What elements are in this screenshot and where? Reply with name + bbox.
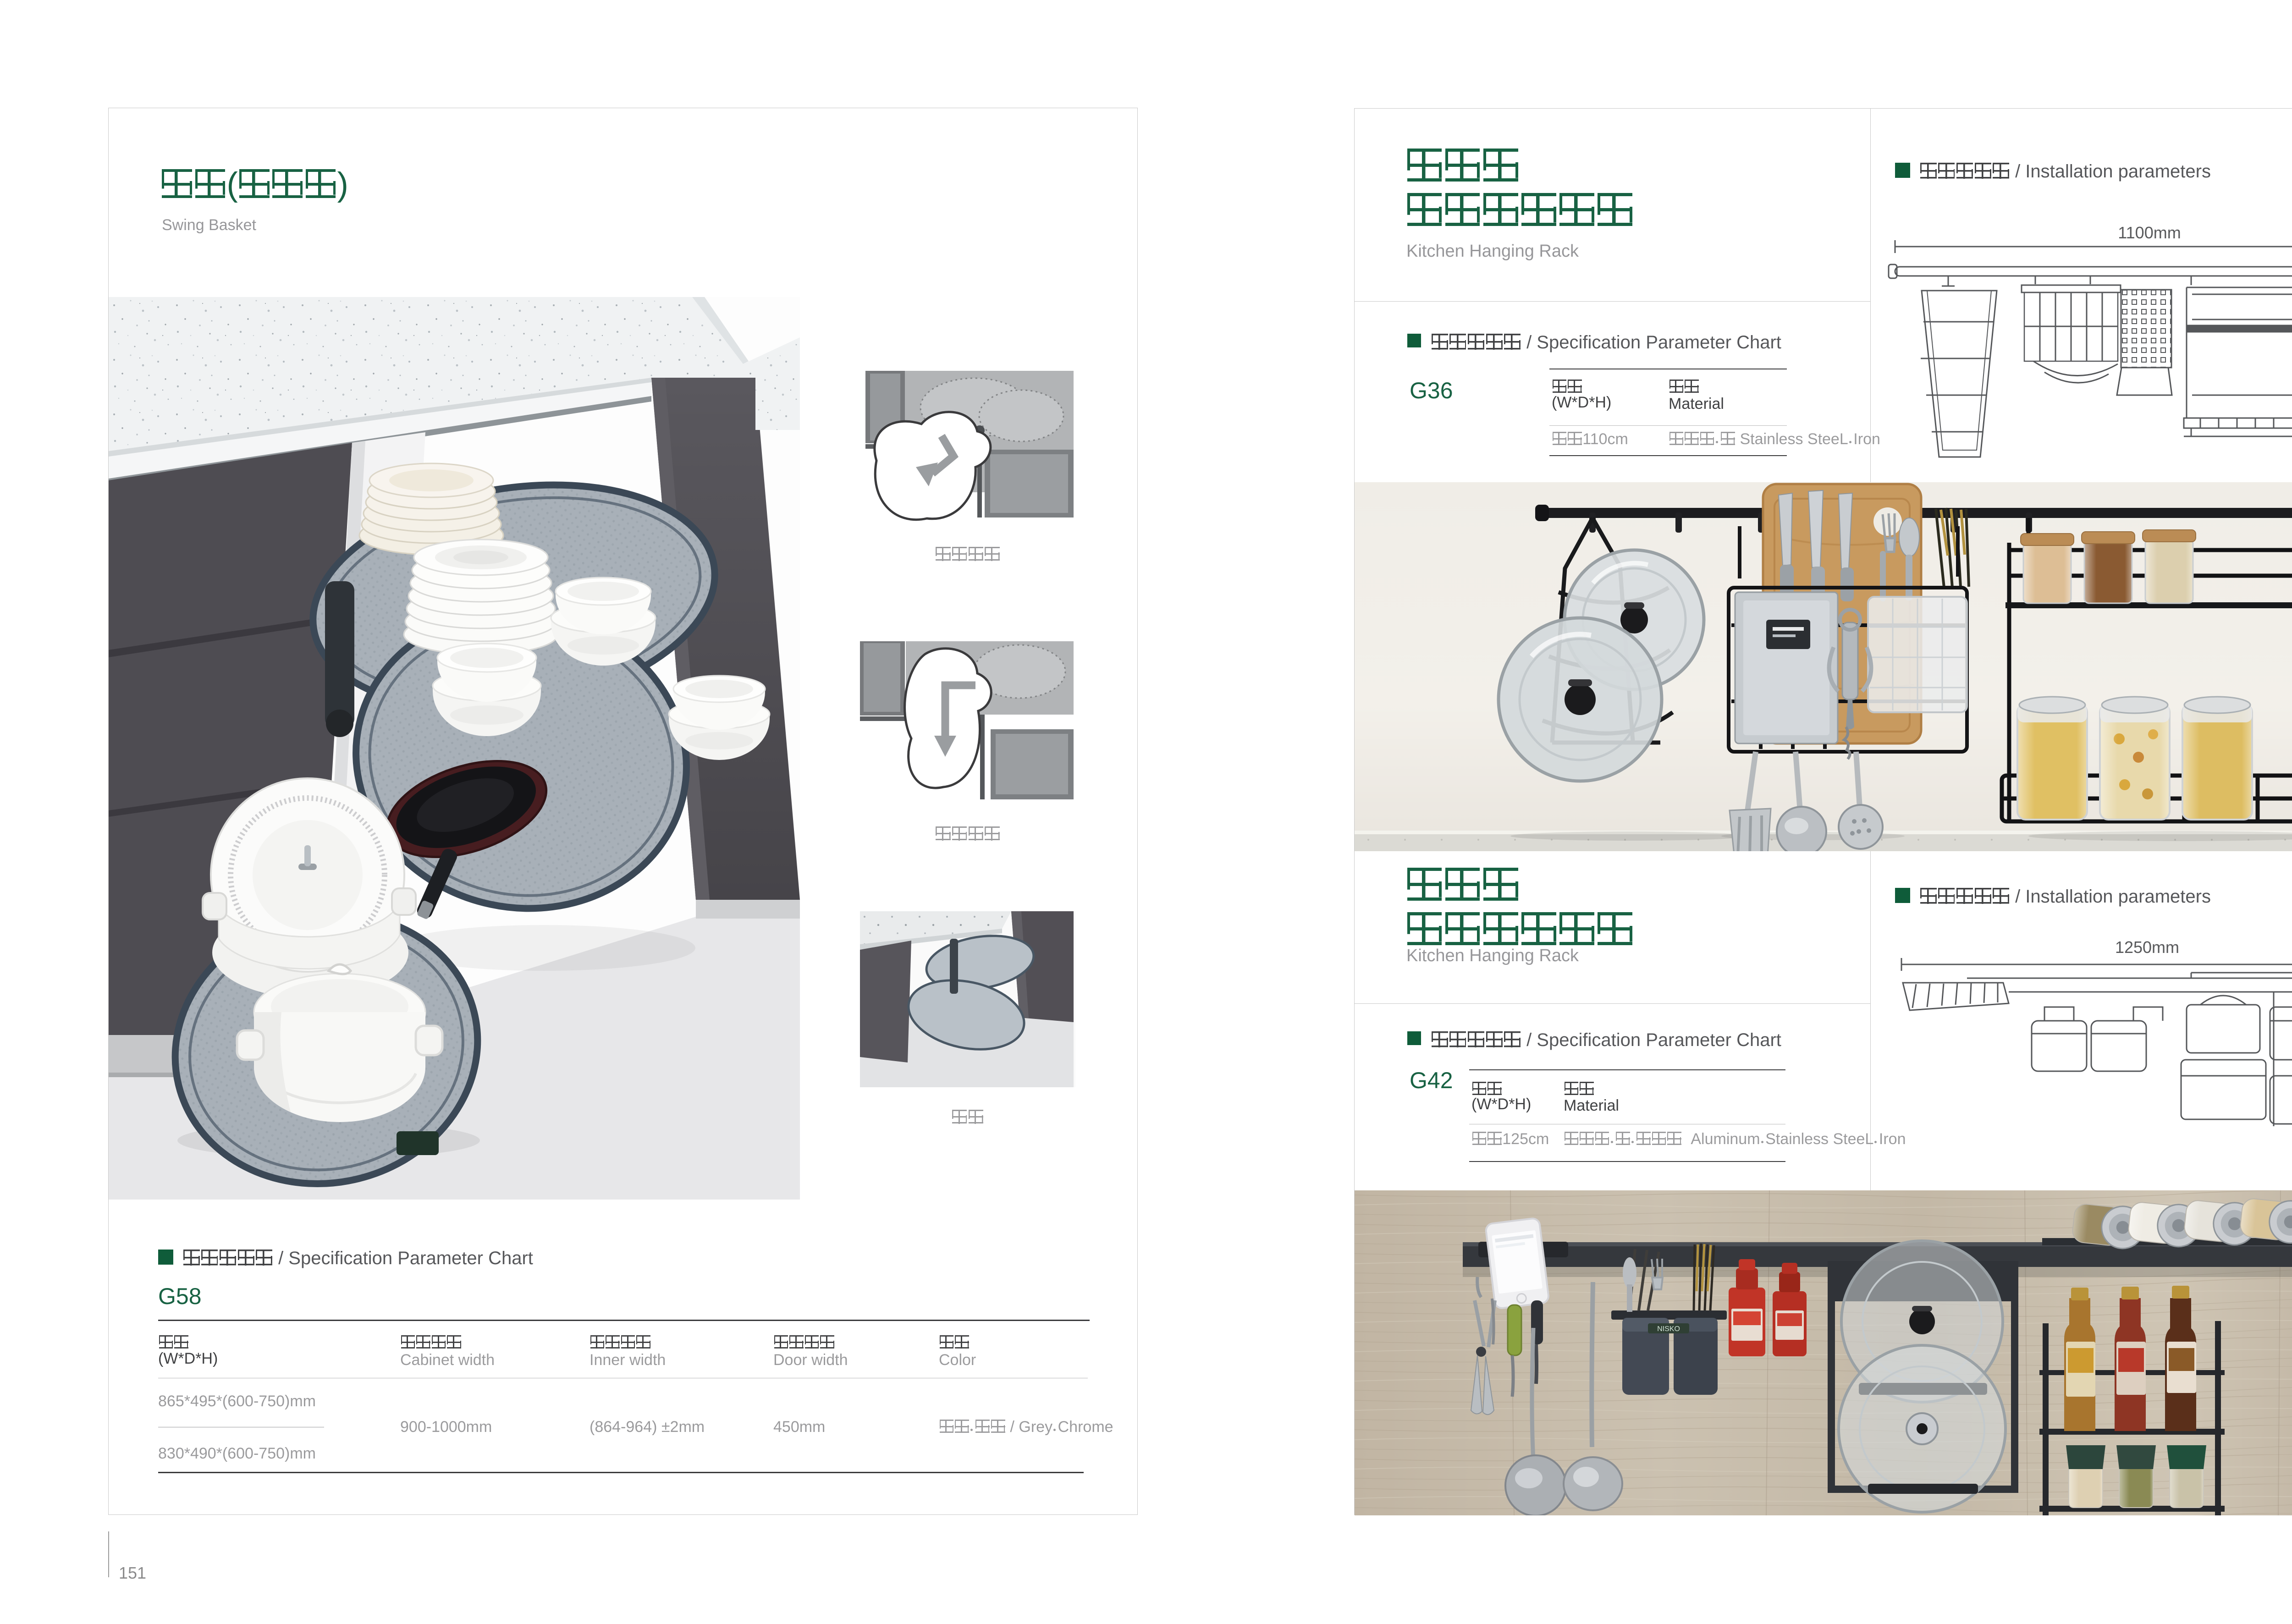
svg-text:1250mm: 1250mm bbox=[2115, 938, 2179, 957]
svg-text:NISKO: NISKO bbox=[1657, 1325, 1680, 1333]
svg-text:1100mm: 1100mm bbox=[2118, 223, 2181, 242]
